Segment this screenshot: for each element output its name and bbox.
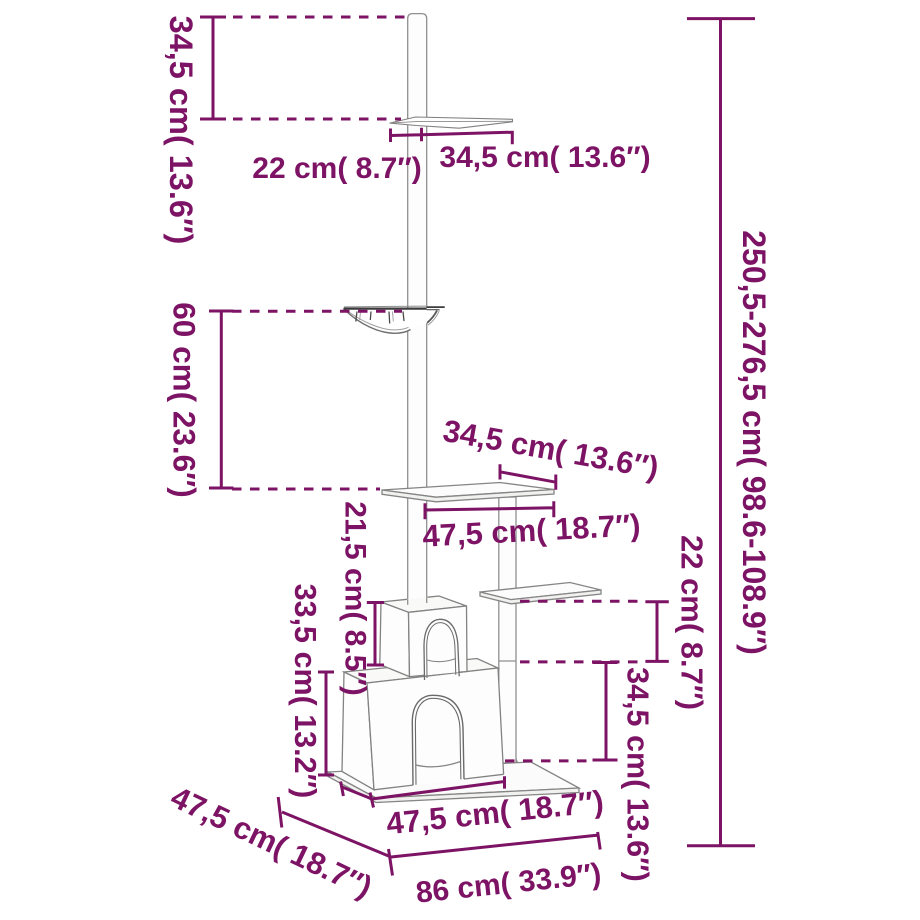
svg-text:22 cm( 8.7″): 22 cm( 8.7″)	[675, 535, 710, 710]
svg-text:60 cm( 23.6″): 60 cm( 23.6″)	[167, 302, 203, 497]
svg-text:34,5 cm( 13.6″): 34,5 cm( 13.6″)	[621, 667, 655, 882]
svg-text:21,5 cm( 8.5″): 21,5 cm( 8.5″)	[339, 501, 372, 695]
svg-text:250,5-276,5 cm( 98.6-108.9″): 250,5-276,5 cm( 98.6-108.9″)	[736, 230, 772, 655]
svg-text:34,5 cm( 13.6″): 34,5 cm( 13.6″)	[439, 141, 650, 174]
svg-text:33,5 cm( 13.2″): 33,5 cm( 13.2″)	[288, 584, 322, 799]
svg-text:34,5 cm( 13.6″): 34,5 cm( 13.6″)	[163, 16, 199, 245]
svg-text:22 cm( 8.7″): 22 cm( 8.7″)	[252, 152, 421, 185]
